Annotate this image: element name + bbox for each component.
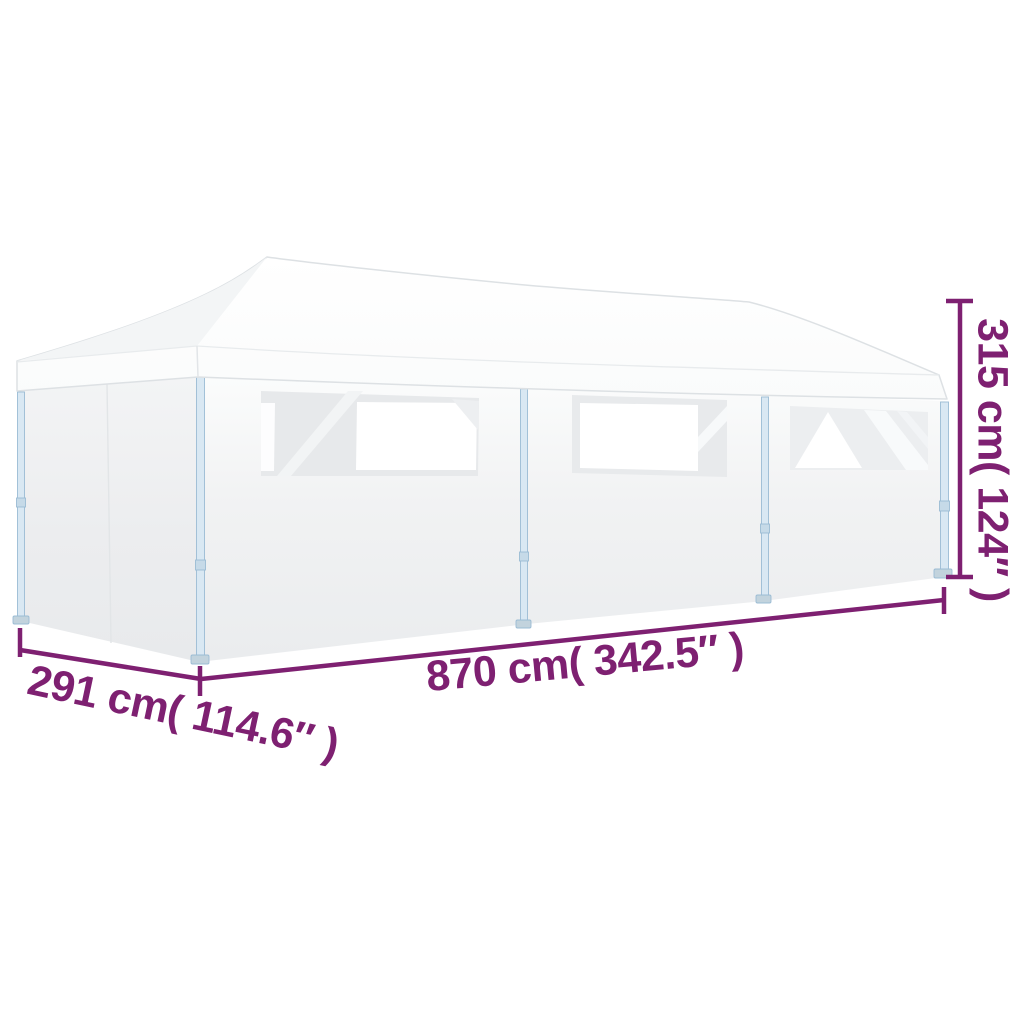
product-dimension-image: 870 cm( 342.5″ ) 291 cm( 114.6″ ) 315 cm… (0, 0, 1024, 1024)
canopy-corner-fold (197, 346, 198, 377)
gazebo-window (572, 395, 727, 477)
gazebo-illustration (0, 0, 1024, 1024)
height-dimension-label: 315 cm( 124″ ) (971, 318, 1014, 602)
gazebo-window (261, 391, 479, 476)
gazebo-window (790, 406, 928, 470)
gazebo-side-wall (19, 377, 199, 662)
gazebo-canopy (17, 257, 947, 399)
